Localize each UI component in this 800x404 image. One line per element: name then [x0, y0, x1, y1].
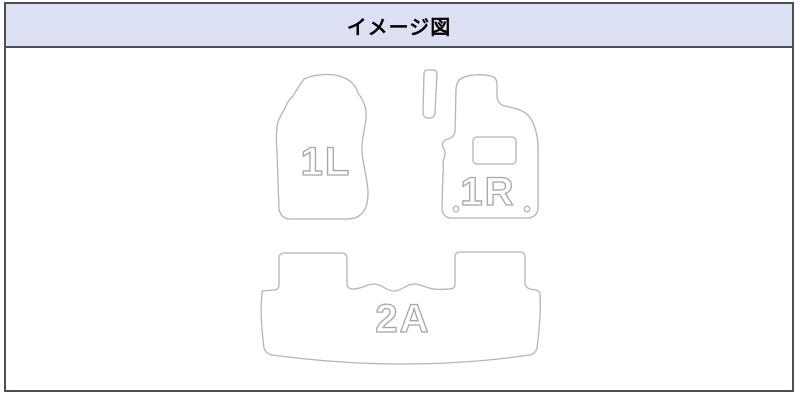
page: イメージ図 1L 1R 2A	[0, 0, 800, 404]
diagram-frame: イメージ図	[4, 2, 794, 392]
diagram-content	[6, 48, 792, 390]
diagram-title: イメージ図	[347, 11, 452, 40]
diagram-header: イメージ図	[6, 4, 792, 48]
